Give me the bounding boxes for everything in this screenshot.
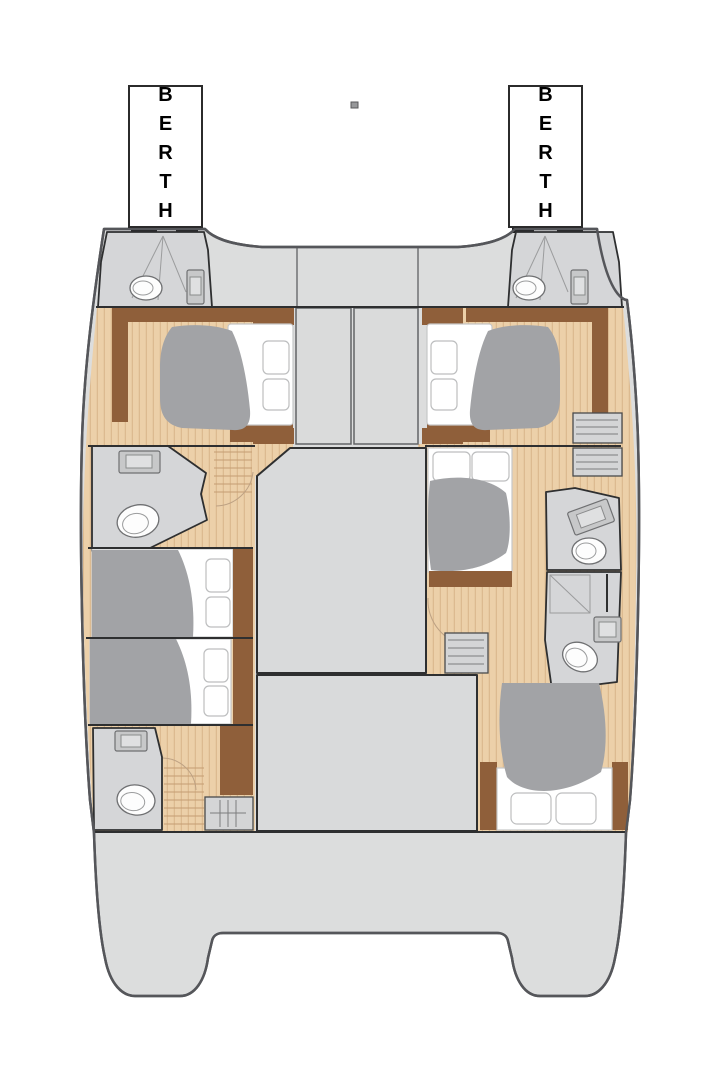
bathroom-mid-right-upper	[546, 488, 621, 570]
saloon-upper	[257, 448, 426, 673]
nacelle-panel-left	[296, 308, 351, 444]
bathroom-bow-left	[98, 232, 212, 307]
pillow	[431, 341, 457, 374]
pillow	[472, 452, 509, 481]
bathroom-aft-left	[93, 728, 162, 830]
wood-trim	[480, 762, 497, 830]
cabin-mid-left-b	[90, 639, 231, 724]
trampoline-edge	[205, 229, 515, 247]
cabin-mid-right	[428, 448, 512, 587]
saloon-lower	[257, 675, 477, 831]
bathroom-mid-right-lower	[545, 572, 621, 690]
toilet-icon	[130, 276, 162, 300]
nacelle-panel-right	[354, 308, 418, 444]
pillow	[433, 452, 470, 481]
storage-locker-left-aft	[205, 797, 253, 830]
toilet-icon	[513, 276, 545, 300]
bed-blanket	[428, 478, 510, 571]
berth-label-right: BERTH	[536, 84, 556, 229]
pillow	[204, 649, 228, 682]
bed-blanket	[499, 683, 605, 791]
floor-plan-canvas	[0, 0, 720, 1080]
sink-basin	[121, 735, 141, 747]
cabin-mid-left-a	[92, 549, 233, 637]
berth-label-left: BERTH	[156, 84, 176, 229]
wood-trim	[233, 548, 253, 640]
pillow	[511, 793, 551, 824]
berth-pillar-left: BERTH	[128, 85, 203, 228]
pillow	[263, 379, 289, 410]
drawer-unit	[445, 633, 488, 673]
wood-trim	[112, 308, 128, 422]
pillow	[204, 686, 228, 716]
sink-basin	[574, 277, 585, 295]
wood-trim	[429, 571, 512, 587]
cabinet	[573, 413, 622, 443]
pillow	[206, 597, 230, 627]
toilet-icon	[572, 538, 606, 564]
wood-trim	[233, 640, 253, 725]
wood-trim	[592, 308, 608, 422]
wood-trim	[253, 308, 294, 325]
storage-drawers-right	[445, 633, 488, 673]
wood-trim	[422, 308, 463, 325]
wood-trim	[612, 762, 628, 830]
sink-basin	[599, 622, 616, 637]
catamaran-floor-plan: BERTH BERTH	[0, 0, 720, 1080]
sink-basin	[126, 455, 152, 468]
wood-trim	[466, 308, 592, 322]
deck-fitting-marker	[351, 102, 358, 108]
wardrobe	[220, 725, 253, 795]
bed-blanket	[92, 550, 193, 637]
pillow	[556, 793, 596, 824]
sink-basin	[190, 277, 201, 295]
wood-trim	[128, 308, 254, 322]
berth-pillar-right: BERTH	[508, 85, 583, 228]
pillow	[431, 379, 457, 410]
pillow	[206, 559, 230, 592]
bed-blanket	[90, 639, 191, 724]
pillow	[263, 341, 289, 374]
